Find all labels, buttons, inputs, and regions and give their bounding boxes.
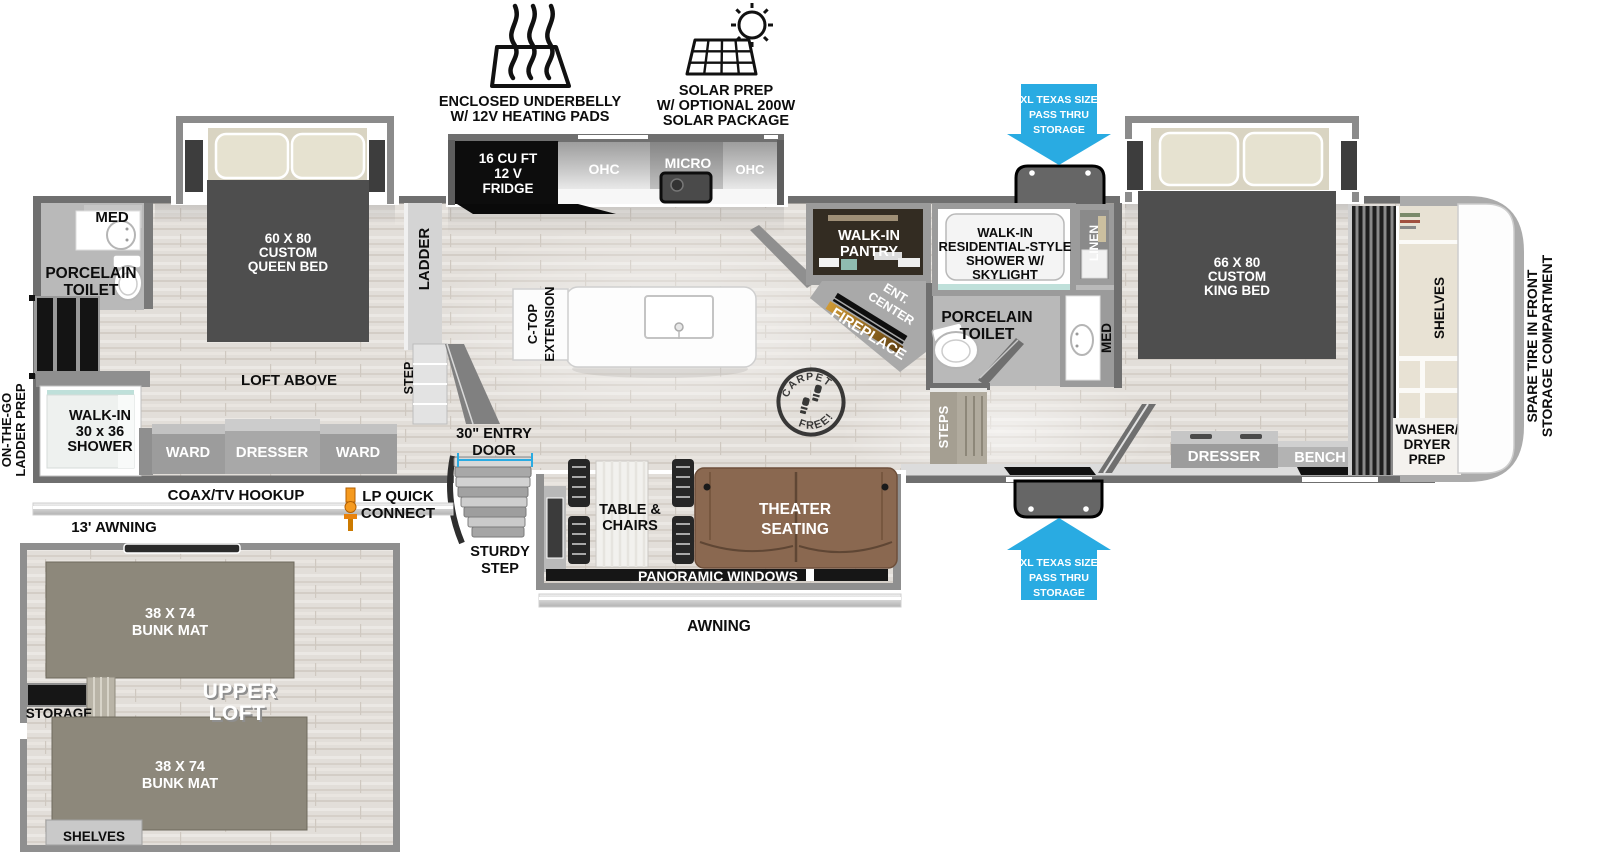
svg-text:RESIDENTIAL-STYLE: RESIDENTIAL-STYLE	[939, 239, 1072, 254]
svg-text:SHELVES: SHELVES	[1432, 277, 1447, 339]
svg-text:PASS THRU: PASS THRU	[1029, 572, 1089, 584]
svg-text:XL TEXAS SIZE: XL TEXAS SIZE	[1020, 557, 1097, 569]
svg-text:BUNK MAT: BUNK MAT	[142, 776, 218, 792]
svg-text:STORAGE: STORAGE	[1033, 124, 1085, 136]
svg-text:MED: MED	[95, 209, 129, 226]
svg-text:PREP: PREP	[1409, 452, 1446, 467]
svg-text:30 x 36: 30 x 36	[76, 424, 124, 440]
svg-text:60 X 80: 60 X 80	[265, 231, 312, 246]
svg-text:W/ 12V HEATING PADS: W/ 12V HEATING PADS	[451, 109, 610, 125]
svg-text:CUSTOM: CUSTOM	[1208, 269, 1266, 284]
svg-text:STORAGE: STORAGE	[1033, 587, 1085, 599]
svg-text:DOOR: DOOR	[472, 443, 516, 459]
svg-text:WALK-IN: WALK-IN	[838, 228, 900, 244]
svg-text:38 X 74: 38 X 74	[145, 606, 195, 622]
svg-text:CHAIRS: CHAIRS	[602, 518, 658, 534]
svg-text:WASHER/: WASHER/	[1395, 422, 1458, 437]
svg-text:FRIDGE: FRIDGE	[482, 181, 533, 196]
svg-text:WARD: WARD	[336, 445, 380, 461]
svg-text:SKYLIGHT: SKYLIGHT	[972, 267, 1038, 282]
svg-text:LOFT: LOFT	[209, 702, 266, 725]
svg-text:TOILET: TOILET	[960, 326, 1015, 343]
svg-text:SHOWER: SHOWER	[67, 439, 133, 455]
svg-text:MICRO: MICRO	[665, 155, 712, 171]
svg-text:UPPER: UPPER	[203, 680, 278, 703]
svg-text:DRYER: DRYER	[1404, 437, 1451, 452]
svg-text:ENCLOSED UNDERBELLY: ENCLOSED UNDERBELLY	[439, 94, 622, 110]
svg-text:PANORAMIC WINDOWS: PANORAMIC WINDOWS	[638, 568, 798, 584]
svg-text:WALK-IN: WALK-IN	[977, 225, 1033, 240]
svg-text:XL TEXAS SIZE: XL TEXAS SIZE	[1020, 94, 1097, 106]
svg-text:WALK-IN: WALK-IN	[69, 408, 131, 424]
svg-text:THEATER: THEATER	[759, 501, 831, 518]
svg-text:SHELVES: SHELVES	[63, 829, 125, 844]
svg-text:DRESSER: DRESSER	[1188, 448, 1261, 465]
svg-text:COAX/TV HOOKUP: COAX/TV HOOKUP	[168, 487, 305, 504]
svg-text:38 X 74: 38 X 74	[155, 759, 205, 775]
svg-text:PASS THRU: PASS THRU	[1029, 109, 1089, 121]
svg-text:30" ENTRY: 30" ENTRY	[456, 426, 532, 442]
svg-text:LADDER: LADDER	[416, 228, 433, 291]
svg-text:AWNING: AWNING	[687, 618, 751, 635]
svg-text:16 CU FT: 16 CU FT	[479, 151, 538, 166]
svg-text:PORCELAIN: PORCELAIN	[45, 265, 136, 282]
svg-text:PANTRY: PANTRY	[840, 244, 898, 260]
svg-text:LINEN: LINEN	[1087, 225, 1101, 261]
svg-text:LP QUICK: LP QUICK	[362, 488, 434, 505]
svg-text:EXTENSION: EXTENSION	[542, 286, 557, 361]
svg-text:ON-THE-GO: ON-THE-GO	[0, 393, 14, 467]
svg-text:WARD: WARD	[166, 445, 210, 461]
svg-text:STEP: STEP	[481, 561, 519, 577]
svg-text:13' AWNING: 13' AWNING	[71, 519, 157, 536]
svg-text:STURDY: STURDY	[470, 544, 530, 560]
svg-text:TABLE &: TABLE &	[599, 502, 661, 518]
svg-text:PORCELAIN: PORCELAIN	[941, 309, 1032, 326]
svg-text:SEATING: SEATING	[761, 521, 829, 538]
svg-text:12 V: 12 V	[494, 166, 522, 181]
svg-text:MED: MED	[1099, 323, 1114, 353]
svg-text:STORAGE COMPARTMENT: STORAGE COMPARTMENT	[1539, 254, 1555, 437]
svg-text:66 X 80: 66 X 80	[1214, 255, 1261, 270]
svg-text:OHC: OHC	[736, 162, 766, 177]
svg-text:W/ OPTIONAL 200W: W/ OPTIONAL 200W	[657, 98, 796, 114]
svg-text:LOFT ABOVE: LOFT ABOVE	[241, 372, 337, 389]
svg-text:STEPS: STEPS	[936, 405, 951, 448]
svg-text:BENCH: BENCH	[1294, 450, 1346, 466]
svg-text:QUEEN BED: QUEEN BED	[248, 259, 329, 274]
svg-text:SPARE TIRE IN FRONT: SPARE TIRE IN FRONT	[1524, 269, 1540, 422]
svg-text:SOLAR PACKAGE: SOLAR PACKAGE	[663, 113, 790, 129]
svg-text:C-TOP: C-TOP	[525, 304, 540, 345]
svg-text:STEP: STEP	[402, 362, 416, 395]
svg-text:SOLAR PREP: SOLAR PREP	[679, 83, 774, 99]
svg-text:LADDER PREP: LADDER PREP	[13, 383, 28, 477]
svg-text:BUNK MAT: BUNK MAT	[132, 623, 208, 639]
svg-text:CONNECT: CONNECT	[361, 505, 435, 522]
svg-text:CUSTOM: CUSTOM	[259, 245, 317, 260]
svg-text:OHC: OHC	[588, 161, 619, 177]
svg-text:SHOWER W/: SHOWER W/	[966, 253, 1044, 268]
svg-text:KING BED: KING BED	[1204, 283, 1270, 298]
svg-text:DRESSER: DRESSER	[236, 444, 309, 461]
